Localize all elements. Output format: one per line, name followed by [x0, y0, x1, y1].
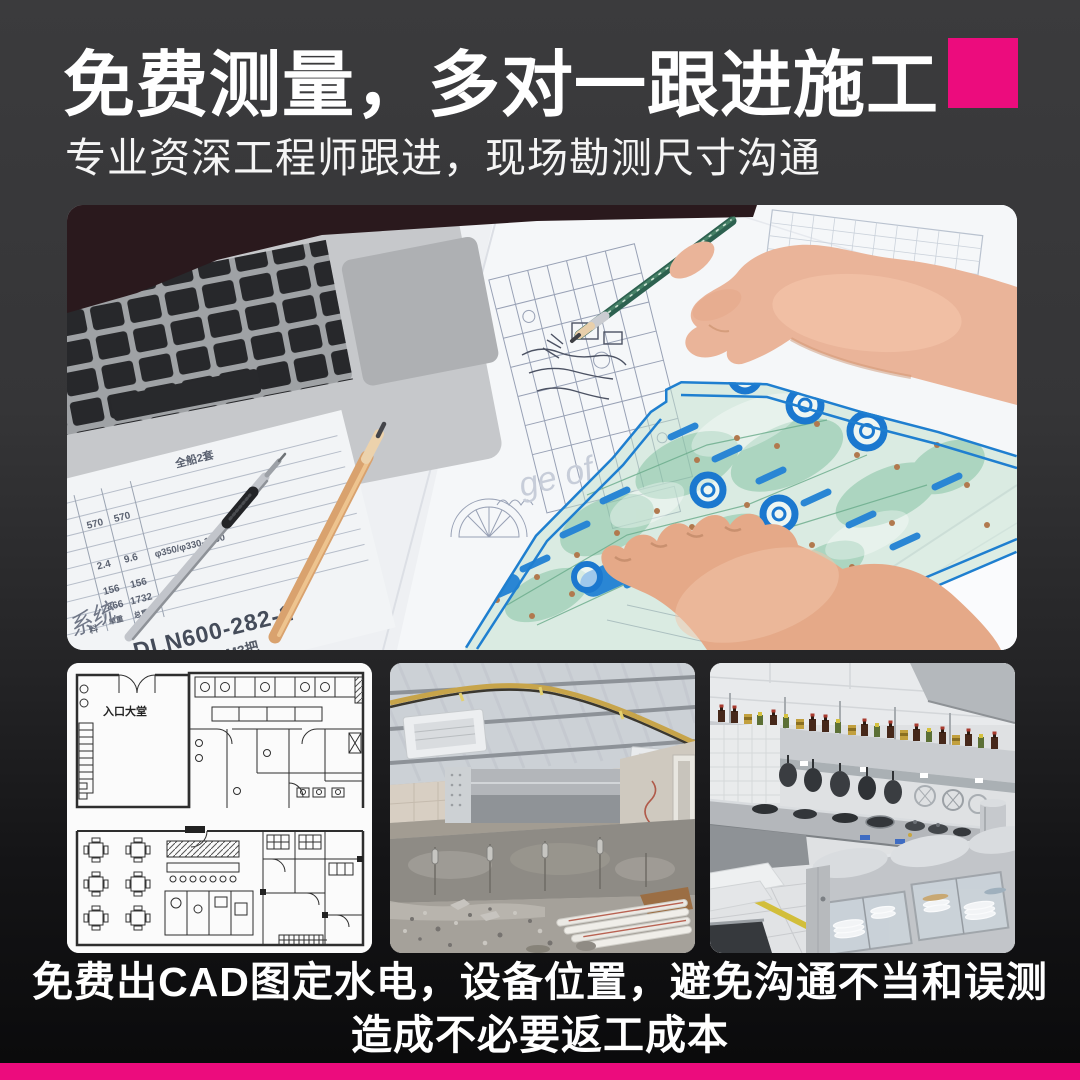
caption-line-1: 免费出CAD图定水电，设备位置，避免沟通不当和误测 [0, 956, 1080, 1009]
caption-line-2: 造成不必要返工成本 [0, 1009, 1080, 1062]
construction-site-illustration [390, 663, 695, 953]
hero-illustration: ge of [67, 205, 1017, 650]
floor-plan-illustration: 入口大堂 [67, 663, 372, 953]
stainless-hood [445, 767, 620, 823]
laptop-trackpad [340, 235, 500, 387]
gallery-photo-floor-plan: 入口大堂 [67, 663, 372, 953]
caption: 免费出CAD图定水电，设备位置，避免沟通不当和误测 造成不必要返工成本 [0, 956, 1080, 1062]
sink-corner [710, 921, 772, 953]
page-title: 免费测量，多对一跟进施工 [63, 26, 943, 131]
bottom-accent-bar [0, 1063, 1080, 1080]
gallery-photo-construction-site [390, 663, 695, 953]
ac-cassette-left [403, 709, 487, 759]
promo-page: 免费测量，多对一跟进施工 专业资深工程师跟进，现场勘测尺寸沟通 [0, 0, 1080, 1080]
gallery-photo-finished-kitchen [710, 663, 1015, 953]
tile-wall [710, 725, 780, 803]
hero-photo-blueprint-scene: ge of [67, 205, 1017, 650]
floor-plan-label: 入口大堂 [103, 704, 147, 718]
accent-square [948, 38, 1018, 108]
kitchen-illustration [710, 663, 1015, 953]
page-subtitle: 专业资深工程师跟进，现场勘测尺寸沟通 [65, 124, 821, 184]
